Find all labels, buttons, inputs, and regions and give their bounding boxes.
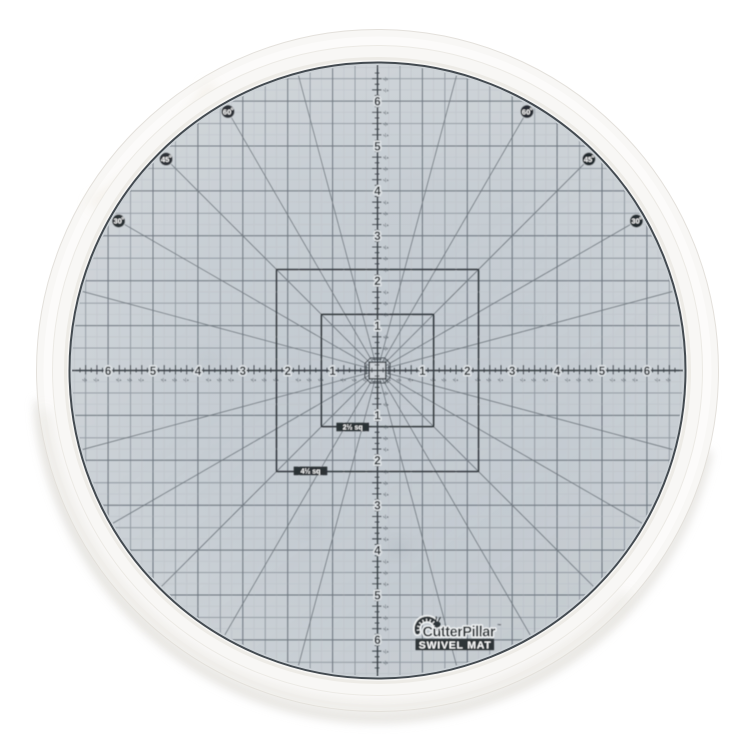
svg-text:CutterPillar: CutterPillar [423, 625, 496, 641]
svg-text:™: ™ [497, 623, 502, 628]
svg-text:SWIVEL MAT: SWIVEL MAT [419, 639, 492, 651]
